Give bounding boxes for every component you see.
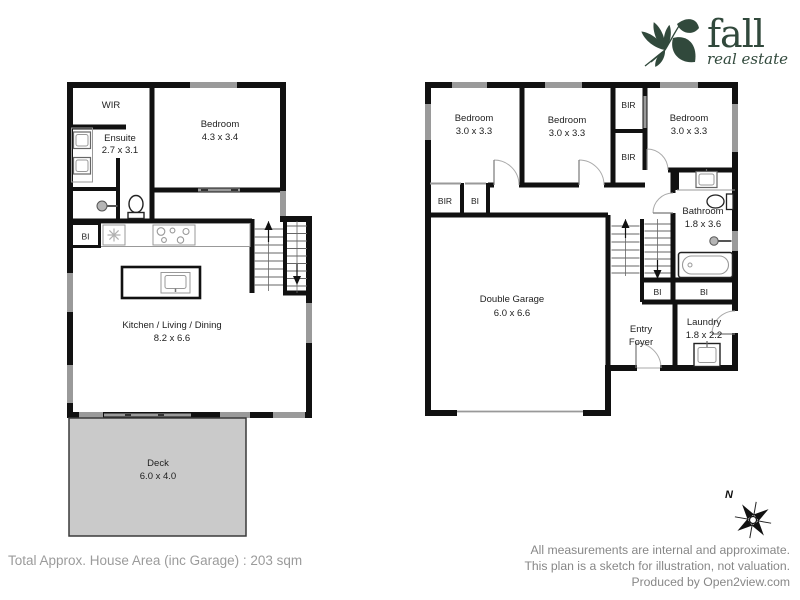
entry-foyer-label-1: Entry [630,324,652,335]
bedroom1-dims: 3.0 x 3.3 [456,126,492,137]
stairs-down-arrow [654,260,662,279]
left-plan-interior-walls [70,85,309,293]
ensuite-dims: 2.7 x 3.1 [102,145,138,156]
disclaimer-line-1: All measurements are internal and approx… [524,542,790,558]
bathroom-dims: 1.8 x 3.6 [685,219,721,230]
fridge-snowflake-icon [108,229,121,242]
vanity-sink-icon [74,132,91,174]
floorplan-canvas: Deck 6.0 x 4.0 WIR Ensuite 2.7 x 3.1 Bed… [0,0,800,600]
toilet-icon [128,196,144,219]
bathtub-icon [679,253,733,278]
agency-logo: fall real estate [627,6,788,70]
deck-area: Deck 6.0 x 4.0 [69,418,246,536]
deck-label: Deck [147,458,169,469]
tap-icon [710,237,732,245]
stairs-up-arrow [265,221,273,242]
total-area-text: Total Approx. House Area (inc Garage) : … [8,553,302,568]
shower-icon [97,201,118,211]
bedroom2-dims: 3.0 x 3.3 [549,128,585,139]
kitchen-bench [72,224,251,247]
stairs-up-arrow [622,219,630,238]
bedroom2-label: Bedroom [548,115,587,126]
bir-mid-label: BIR [621,152,635,162]
bedroom3-label: Bedroom [670,113,709,124]
hall-bir-label: BIR [438,196,452,206]
ensuite-label: Ensuite [104,133,136,144]
bedroom-left-dims: 4.3 x 3.4 [202,132,238,143]
wir-label: WIR [102,100,121,111]
bedroom3-dims: 3.0 x 3.3 [671,126,707,137]
kitchen-label: Kitchen / Living / Dining [122,320,221,331]
brand-tagline: real estate [707,50,788,68]
staircase-left-plan [254,221,307,293]
hall-bi-label: BI [471,196,479,206]
bedroom-left-label: Bedroom [201,119,240,130]
logo-leaves-icon [627,6,707,70]
bi-right-label: BI [700,287,708,297]
kitchen-dims: 8.2 x 6.6 [154,333,190,344]
cooktop-icon [157,228,189,244]
brand-name: fall [707,16,788,52]
bir-top-label: BIR [621,100,635,110]
disclaimer-line-3: Produced by Open2view.com [524,574,790,590]
deck-dims: 6.0 x 4.0 [140,471,176,482]
island-bench [122,267,200,298]
garage-label: Double Garage [480,294,544,305]
bathroom-label: Bathroom [682,206,723,217]
floor-plan-left: Deck 6.0 x 4.0 WIR Ensuite 2.7 x 3.1 Bed… [69,85,309,536]
floor-plan-right: Bedroom 3.0 x 3.3 Bedroom 3.0 x 3.3 Bedr… [428,85,735,413]
entry-foyer-label-2: Foyer [629,337,653,348]
laundry-tub-icon [694,341,720,367]
compass-north-label: N [725,489,734,501]
bi-left-label: BI [653,287,661,297]
laundry-label: Laundry [687,317,722,328]
stairs-down-arrow [293,264,301,285]
bedroom1-label: Bedroom [455,113,494,124]
disclaimer-line-2: This plan is a sketch for illustration, … [524,558,790,574]
disclaimer-text: All measurements are internal and approx… [524,542,790,591]
laundry-dims: 1.8 x 2.2 [686,330,722,341]
basin-icon [696,169,717,188]
garage-dims: 6.0 x 6.6 [494,308,530,319]
kitchen-bi-label: BI [81,232,89,242]
